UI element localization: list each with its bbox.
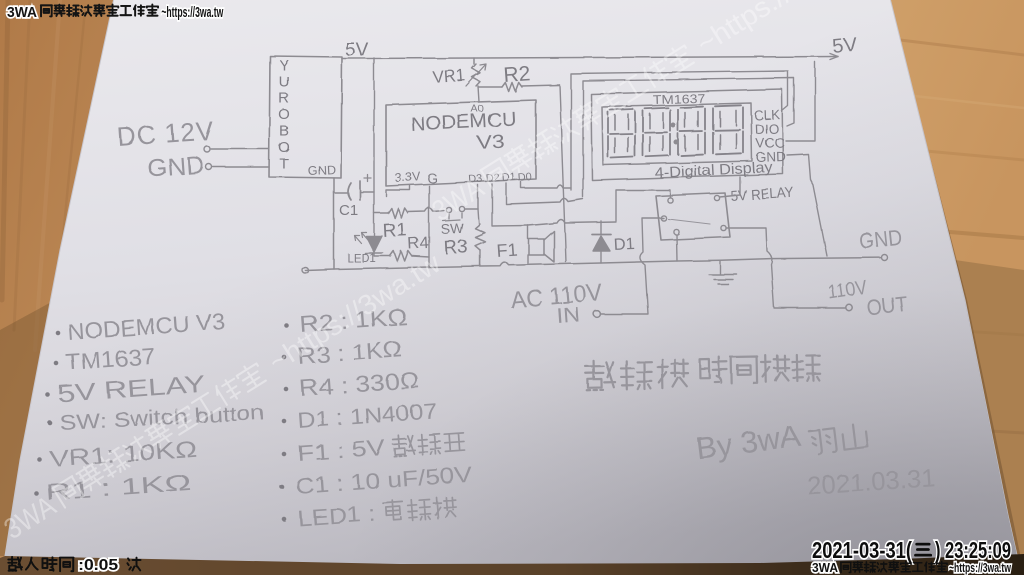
svg-text:U: U — [279, 73, 290, 90]
svg-text:B: B — [279, 123, 289, 140]
svg-text:Y: Y — [279, 57, 289, 74]
svg-text:VR1: VR1 — [432, 66, 466, 87]
svg-text:GND: GND — [307, 163, 335, 178]
svg-text:IN: IN — [556, 303, 582, 328]
svg-text:R1: R1 — [382, 220, 407, 242]
svg-text:5V: 5V — [831, 33, 858, 58]
svg-text:V3: V3 — [476, 132, 505, 154]
svg-text:O: O — [278, 139, 290, 156]
svg-text:3.3V: 3.3V — [394, 169, 421, 185]
svg-text:F1: F1 — [496, 240, 518, 261]
svg-text:R2: R2 — [503, 62, 531, 87]
svg-text:T: T — [279, 155, 288, 172]
svg-text:GND: GND — [146, 151, 205, 183]
svg-text:GND: GND — [756, 149, 787, 165]
svg-text:3WA: 3WA — [7, 4, 37, 21]
svg-text:D1: D1 — [613, 235, 635, 254]
svg-text:~https://3wa.tw: ~https://3wa.tw — [949, 560, 1012, 575]
svg-text:O: O — [278, 106, 290, 123]
svg-text::0.05: :0.05 — [78, 557, 118, 574]
svg-text:C1: C1 — [339, 202, 358, 219]
svg-text:GND: GND — [858, 225, 903, 254]
svg-text:~https://3wa.tw: ~https://3wa.tw — [161, 4, 223, 21]
svg-text:LED1: LED1 — [347, 253, 376, 265]
svg-text:3WA: 3WA — [812, 560, 839, 575]
svg-text:OUT: OUT — [865, 291, 908, 320]
svg-text:R: R — [279, 90, 290, 107]
svg-text:R3: R3 — [443, 237, 468, 259]
svg-text:G: G — [427, 171, 438, 186]
